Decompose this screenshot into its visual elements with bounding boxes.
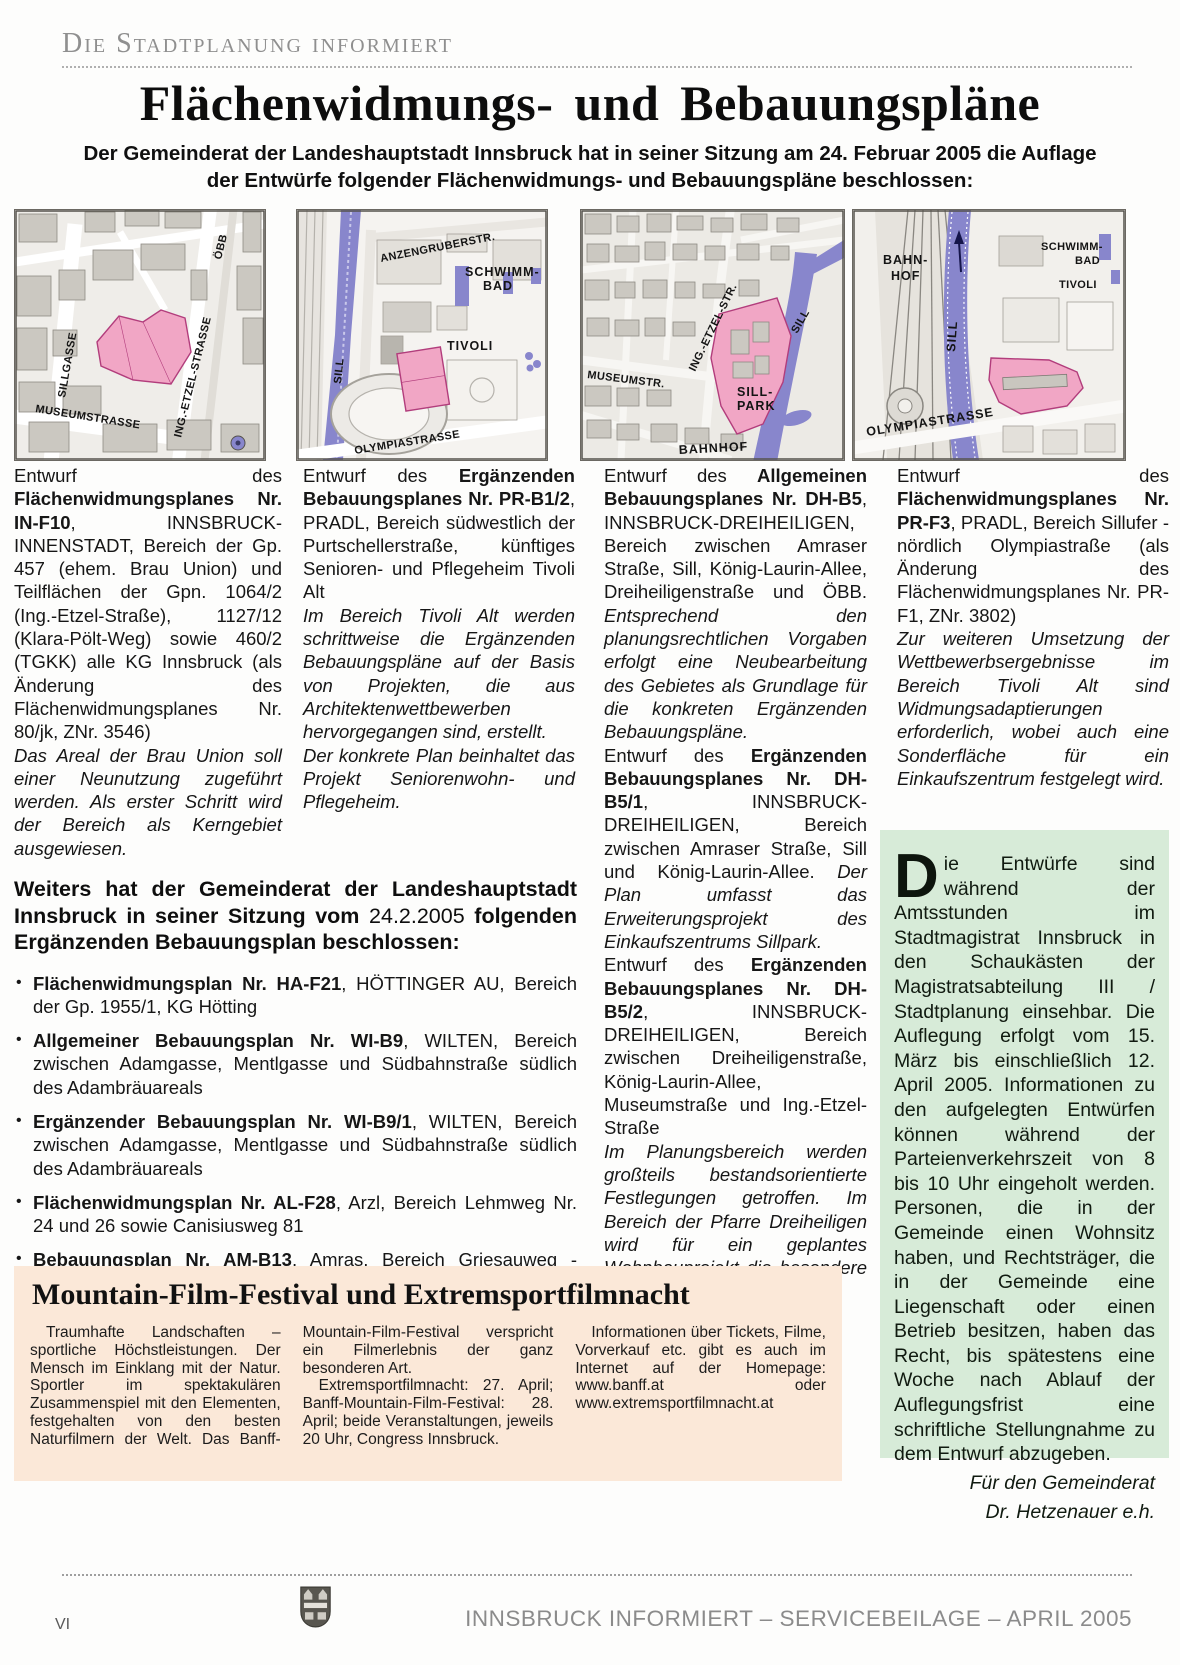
plan-paragraph: Der konkrete Plan beinhaltet das Projekt…: [303, 744, 575, 814]
bullet-icon: •: [16, 1028, 22, 1051]
plan-paragraph: Entwurf des Ergänzenden Bebauungsplanes …: [604, 744, 867, 954]
list-item: • Flächenwidmungsplan Nr. AL-F28, Arzl, …: [14, 1191, 577, 1238]
station-label: BAHN-: [883, 253, 928, 267]
plan-list: • Flächenwidmungsplan Nr. HA-F21, HÖTTIN…: [14, 972, 577, 1296]
city-plan-map-in-f10: SILLGASSE MUSEUMSTRASSE ING.-ETZEL-STRAS…: [14, 209, 266, 461]
film-festival-box: Mountain-Film-Festival und Extremsportfi…: [14, 1266, 842, 1481]
plan-paragraph: Das Areal der Brau Union soll einer Neun…: [14, 744, 282, 860]
pool: [1111, 270, 1120, 284]
plan-column-pr-f3: Entwurf des Flächenwidmungsplanes Nr. PR…: [897, 464, 1169, 790]
plan-column-dh-b5: Entwurf des Allgemeinen Bebauungsplanes …: [604, 464, 867, 1303]
plan-paragraph: Entwurf des Flächenwidmungsplanes Nr. IN…: [14, 464, 282, 744]
map-graphic: BAHN- HOF SILL SCHWIMM- BAD TIVOLI OLYMP…: [853, 210, 1125, 460]
subtitle-line-1: Der Gemeinderat der Landeshauptstadt Inn…: [0, 140, 1180, 167]
film-paragraph: Extremsportfilmnacht: 27. April; Banff-M…: [303, 1377, 554, 1448]
list-item-text: Flächenwidmungsplan Nr. AL-F28, Arzl, Be…: [33, 1192, 577, 1236]
area-label: TIVOLI: [1059, 279, 1097, 291]
notice-text: Die Entwürfe sind während der Amtsstunde…: [894, 852, 1155, 1467]
additional-resolutions-section: Weiters hat der Gemeinderat der Landesha…: [14, 876, 577, 1306]
pool-label: SCHWIMM-: [1041, 241, 1103, 253]
notice-body: ie Entwürfe sind während der Amtsstunden…: [894, 853, 1155, 1465]
map-graphic: MUSEUMSTR. ING.-ETZEL-STR. SILL SILL- PA…: [581, 210, 844, 460]
city-plan-map-pr-f3: BAHN- HOF SILL SCHWIMM- BAD TIVOLI OLYMP…: [852, 209, 1126, 461]
drop-cap: D: [894, 852, 944, 900]
plan-paragraph: Im Bereich Tivoli Alt werden schrittweis…: [303, 604, 575, 744]
city-plan-map-pr-b1-2: SILL ANZENGRUBERSTR. SCHWIMM- BAD TIVOLI…: [296, 209, 548, 461]
station-label: HOF: [891, 269, 920, 283]
river-label: SILL: [944, 320, 960, 352]
innsbruck-crest-icon: [299, 1586, 332, 1628]
plan-column-in-f10: Entwurf des Flächenwidmungsplanes Nr. IN…: [14, 464, 282, 860]
newspaper-page: Die Stadtplanung informiert Flächenwidmu…: [0, 0, 1180, 1665]
footer-masthead: INNSBRUCK INFORMIERT – SERVICEBEILAGE – …: [465, 1606, 1132, 1632]
plan-column-pr-b1-2: Entwurf des Ergänzenden Bebauungsplanes …: [303, 464, 575, 813]
list-item-text: Flächenwidmungsplan Nr. HA-F21, HÖTTINGE…: [33, 973, 577, 1017]
plan-paragraph: Entwurf des Ergänzenden Bebauungsplanes …: [303, 464, 575, 604]
bullet-icon: •: [16, 1190, 22, 1213]
plan-paragraph: Zur weiteren Umsetzung der Wettbewerbser…: [897, 627, 1169, 790]
page-number: VI: [55, 1616, 70, 1634]
signature-role: Für den Gemeinderat: [894, 1471, 1155, 1496]
plan-paragraph: Entwurf des Ergänzenden Bebauungsplanes …: [604, 953, 867, 1139]
bullet-icon: •: [16, 1109, 22, 1132]
film-festival-title: Mountain-Film-Festival und Extremsportfi…: [32, 1278, 826, 1312]
film-paragraph: Informationen über Tickets, Filme, Vorve…: [575, 1324, 826, 1413]
subtitle-line-2: der Entwürfe folgender Flächenwidmungs- …: [0, 167, 1180, 194]
page-subtitle: Der Gemeinderat der Landeshauptstadt Inn…: [0, 140, 1180, 194]
signature-name: Dr. Hetzenauer e.h.: [894, 1500, 1155, 1525]
map-graphic: SILLGASSE MUSEUMSTRASSE ING.-ETZEL-STRAS…: [15, 210, 265, 460]
list-item-text: Ergänzender Bebauungsplan Nr. WI-B9/1, W…: [33, 1111, 577, 1179]
footer-divider: [62, 1574, 1132, 1576]
list-item: • Allgemeiner Bebauungsplan Nr. WI-B9, W…: [14, 1029, 577, 1099]
pool-label: BAD: [483, 279, 513, 293]
list-item: • Ergänzender Bebauungsplan Nr. WI-B9/1,…: [14, 1110, 577, 1180]
section-kicker: Die Stadtplanung informiert: [62, 28, 1132, 60]
public-notice-box: Die Entwürfe sind während der Amtsstunde…: [880, 830, 1169, 1458]
kicker-divider: [62, 66, 1132, 68]
plan-paragraph: Entwurf des Allgemeinen Bebauungsplanes …: [604, 464, 867, 744]
city-plan-map-dh-b5: MUSEUMSTR. ING.-ETZEL-STR. SILL SILL- PA…: [580, 209, 845, 461]
list-item-text: Allgemeiner Bebauungsplan Nr. WI-B9, WIL…: [33, 1030, 577, 1098]
area-label: PARK: [737, 399, 776, 413]
map-graphic: SILL ANZENGRUBERSTR. SCHWIMM- BAD TIVOLI…: [297, 210, 547, 460]
plan-paragraph: Entwurf des Flächenwidmungsplanes Nr. PR…: [897, 464, 1169, 627]
list-item: • Flächenwidmungsplan Nr. HA-F21, HÖTTIN…: [14, 972, 577, 1019]
area-label: TIVOLI: [447, 339, 493, 353]
area-label: SILL-: [737, 385, 773, 399]
page-title: Flächenwidmungs- und Bebauungspläne: [0, 74, 1180, 132]
section-heading: Weiters hat der Gemeinderat der Landesha…: [14, 876, 577, 956]
bullet-icon: •: [16, 971, 22, 994]
film-festival-text: Traumhafte Landschaften – sportliche Höc…: [30, 1324, 826, 1454]
pool-label: SCHWIMM-: [465, 265, 540, 279]
pool-label: BAD: [1075, 255, 1100, 267]
